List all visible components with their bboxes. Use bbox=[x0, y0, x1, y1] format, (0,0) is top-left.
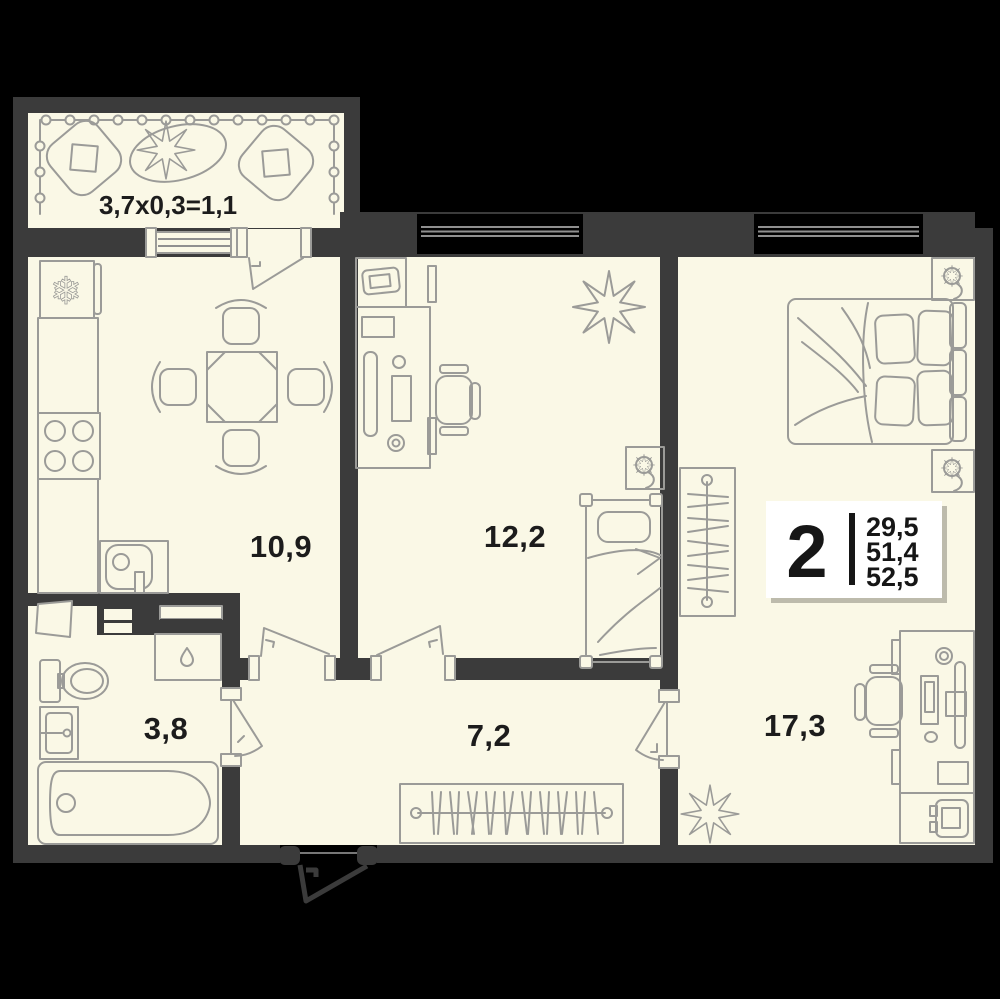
balcony: 3,7x0,3=1,1 bbox=[13, 97, 360, 230]
floor-plan-page: 3,7x0,3=1,1 bbox=[0, 0, 1000, 999]
bedroom-area-label: 17,3 bbox=[764, 708, 826, 743]
bedroom-window bbox=[754, 214, 923, 254]
stove-icon bbox=[38, 413, 100, 479]
bottom-wall-left bbox=[13, 845, 280, 863]
badge-total-area: 52,5 bbox=[866, 562, 919, 592]
floor-plan-image: 3,7x0,3=1,1 bbox=[0, 0, 1000, 999]
balcony-right-wall bbox=[344, 97, 360, 230]
hall-top-wall-b bbox=[331, 658, 376, 680]
balcony-dimension-label: 3,7x0,3=1,1 bbox=[99, 190, 237, 220]
wall-niche bbox=[160, 606, 222, 619]
balcony-kitchen-window bbox=[146, 228, 241, 257]
balcony-left-wall bbox=[13, 97, 28, 230]
kitchen-area-label: 10,9 bbox=[250, 529, 312, 564]
living-room-area-label: 12,2 bbox=[484, 519, 546, 554]
bedroom-hall-wall-lower bbox=[660, 760, 678, 845]
bathroom-right-wall-upper bbox=[222, 600, 240, 692]
fridge-icon: ❄ bbox=[40, 261, 101, 318]
living-room-window bbox=[417, 214, 583, 254]
right-outer-wall bbox=[975, 228, 993, 863]
snowflake-glyph: ❄ bbox=[50, 269, 82, 313]
vent-shaft-b bbox=[160, 619, 222, 635]
badge-room-count: 2 bbox=[786, 510, 827, 593]
badge-divider bbox=[849, 513, 855, 585]
vent-niche bbox=[104, 609, 132, 620]
balcony-top-wall bbox=[13, 97, 360, 115]
kitchen-sink-icon bbox=[100, 541, 168, 593]
bathroom-right-wall-lower bbox=[222, 756, 240, 845]
hallway-area-label: 7,2 bbox=[467, 718, 512, 753]
shelf-icon bbox=[36, 601, 72, 637]
vent-niche bbox=[104, 623, 132, 633]
bottom-wall-right bbox=[377, 845, 993, 863]
bathroom-area-label: 3,8 bbox=[144, 711, 189, 746]
washing-machine-icon bbox=[155, 634, 221, 680]
left-outer-wall bbox=[13, 228, 28, 863]
info-badge: 2 29,5 51,4 52,5 bbox=[766, 501, 947, 603]
